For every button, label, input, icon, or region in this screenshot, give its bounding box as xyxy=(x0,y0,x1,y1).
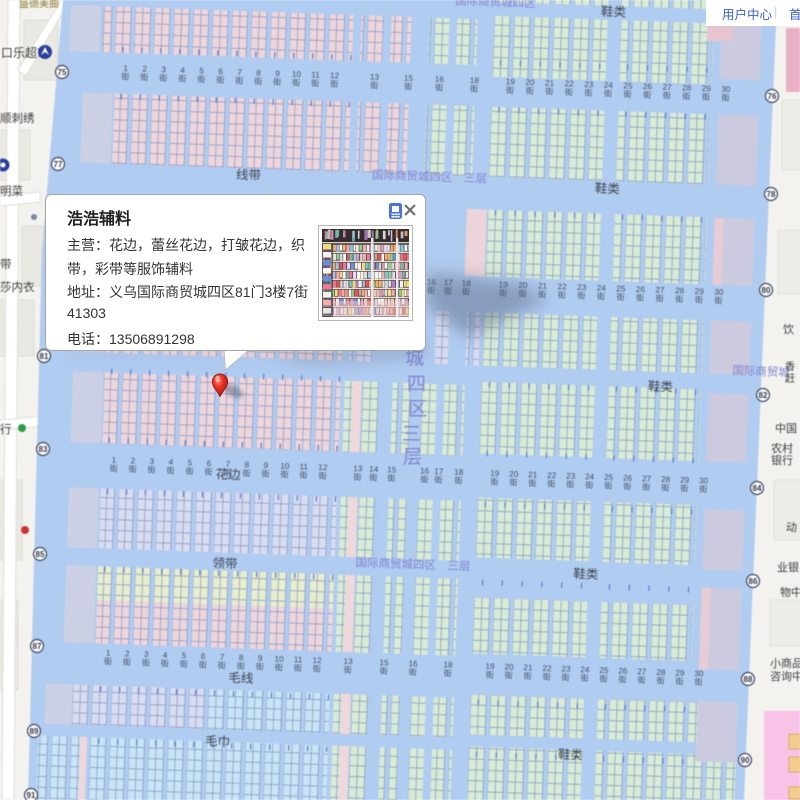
svg-text:街: 街 xyxy=(237,661,246,671)
svg-text:街: 街 xyxy=(558,290,567,300)
svg-text:街: 街 xyxy=(528,478,537,488)
svg-text:86: 86 xyxy=(749,577,758,586)
svg-text:街: 街 xyxy=(218,660,227,670)
svg-text:80: 80 xyxy=(762,286,771,295)
svg-text:街: 街 xyxy=(597,291,606,301)
svg-text:四: 四 xyxy=(407,374,426,395)
svg-text:街: 街 xyxy=(369,472,378,482)
svg-text:街: 街 xyxy=(261,469,270,479)
svg-text:街: 街 xyxy=(584,88,593,98)
svg-text:街: 街 xyxy=(199,659,208,669)
svg-text:鞋类: 鞋类 xyxy=(594,180,620,196)
svg-text:街: 街 xyxy=(702,92,711,102)
svg-text:街: 街 xyxy=(618,674,627,684)
svg-text:街: 街 xyxy=(661,482,670,492)
svg-text:街: 街 xyxy=(185,466,194,476)
svg-text:三: 三 xyxy=(402,424,421,445)
svg-text:87: 87 xyxy=(33,642,42,651)
svg-text:毛巾: 毛巾 xyxy=(205,734,230,749)
svg-text:街: 街 xyxy=(142,657,151,667)
svg-text:街: 街 xyxy=(104,656,113,666)
svg-text:街: 街 xyxy=(490,477,499,487)
svg-text:鞋类: 鞋类 xyxy=(601,3,627,19)
svg-text:街: 街 xyxy=(714,295,723,305)
svg-text:84: 84 xyxy=(753,484,762,493)
svg-text:街: 街 xyxy=(330,79,339,89)
svg-text:街: 街 xyxy=(675,676,684,686)
svg-text:鞋类: 鞋类 xyxy=(558,746,584,762)
svg-text:街: 街 xyxy=(682,91,691,101)
svg-text:动: 动 xyxy=(786,521,797,534)
svg-text:街: 街 xyxy=(509,477,518,487)
svg-text:街: 街 xyxy=(273,77,282,87)
svg-text:线带: 线带 xyxy=(236,168,261,183)
svg-text:街: 街 xyxy=(523,671,532,681)
svg-text:85: 85 xyxy=(36,550,45,559)
svg-text:街: 街 xyxy=(545,86,554,96)
svg-text:街: 街 xyxy=(506,85,515,95)
svg-text:街: 街 xyxy=(623,89,632,99)
svg-text:街: 街 xyxy=(643,90,652,100)
svg-text:街: 街 xyxy=(204,467,213,477)
svg-text:街: 街 xyxy=(178,73,187,83)
svg-text:街: 街 xyxy=(353,472,362,482)
svg-text:街: 街 xyxy=(280,469,289,479)
svg-text:物中: 物中 xyxy=(780,585,800,599)
svg-text:街: 街 xyxy=(470,84,479,94)
svg-text:街: 街 xyxy=(580,673,589,683)
svg-text:街: 街 xyxy=(420,474,429,484)
svg-text:街: 街 xyxy=(313,663,322,673)
svg-text:农村: 农村 xyxy=(771,441,793,455)
svg-text:街: 街 xyxy=(663,90,672,100)
svg-text:街: 街 xyxy=(275,662,284,672)
svg-text:街: 街 xyxy=(616,292,625,302)
svg-text:90: 90 xyxy=(741,756,750,765)
svg-text:街: 街 xyxy=(675,294,684,304)
svg-text:街: 街 xyxy=(242,468,251,478)
svg-text:街: 街 xyxy=(256,661,265,671)
svg-text:街: 街 xyxy=(147,465,156,475)
svg-text:77: 77 xyxy=(54,160,63,169)
svg-text:街: 街 xyxy=(166,465,175,475)
svg-text:街: 街 xyxy=(637,675,646,685)
svg-text:街: 街 xyxy=(655,293,664,303)
svg-text:街: 街 xyxy=(161,658,170,668)
svg-text:街: 街 xyxy=(216,75,225,85)
svg-text:街: 街 xyxy=(379,666,388,676)
svg-text:街: 街 xyxy=(585,480,594,490)
svg-text:82: 82 xyxy=(759,391,768,400)
svg-text:街: 街 xyxy=(599,673,608,683)
svg-text:小商品市: 小商品市 xyxy=(770,656,800,670)
svg-text:层: 层 xyxy=(403,447,422,468)
svg-text:街: 街 xyxy=(699,484,708,494)
svg-text:街: 街 xyxy=(235,75,244,85)
svg-text:业银: 业银 xyxy=(777,560,799,574)
svg-text:街: 街 xyxy=(434,475,443,485)
svg-text:街: 街 xyxy=(695,295,704,305)
svg-text:街: 街 xyxy=(387,473,396,483)
svg-text:明菜: 明菜 xyxy=(0,185,23,198)
svg-text:75: 75 xyxy=(58,68,67,77)
svg-text:街: 街 xyxy=(128,464,137,474)
svg-text:街: 街 xyxy=(604,88,613,98)
svg-text:街: 街 xyxy=(254,76,263,86)
svg-text:街: 街 xyxy=(542,671,551,681)
svg-text:街: 街 xyxy=(109,463,118,473)
svg-text:街: 街 xyxy=(642,482,651,492)
svg-text:78: 78 xyxy=(767,190,776,199)
svg-text:鞋类: 鞋类 xyxy=(573,566,599,582)
svg-text:街: 街 xyxy=(547,479,556,489)
svg-text:街: 街 xyxy=(623,481,632,491)
svg-text:赶: 赶 xyxy=(785,372,795,385)
svg-text:76: 76 xyxy=(768,92,777,101)
svg-text:街: 街 xyxy=(443,668,452,678)
svg-text:街: 街 xyxy=(721,92,730,102)
svg-text:街: 街 xyxy=(292,77,301,87)
svg-text:街: 街 xyxy=(344,665,353,675)
svg-text:盛德美曲: 盛德美曲 xyxy=(19,0,59,10)
svg-text:区: 区 xyxy=(408,399,427,420)
svg-text:街: 街 xyxy=(577,290,586,300)
svg-text:莎内衣: 莎内衣 xyxy=(0,280,35,294)
svg-text:街: 街 xyxy=(485,669,494,679)
svg-text:毛线: 毛线 xyxy=(228,671,254,686)
svg-text:街: 街 xyxy=(454,475,463,485)
svg-text:带: 带 xyxy=(0,258,12,271)
svg-text:街: 街 xyxy=(680,483,689,493)
svg-text:行: 行 xyxy=(0,423,12,436)
svg-text:街: 街 xyxy=(159,73,168,83)
svg-text:街: 街 xyxy=(561,672,570,682)
svg-text:鞋类: 鞋类 xyxy=(648,378,674,394)
svg-text:83: 83 xyxy=(39,445,48,454)
svg-text:银行: 银行 xyxy=(771,453,793,467)
svg-text:中国: 中国 xyxy=(775,422,797,435)
svg-text:街: 街 xyxy=(408,667,417,677)
svg-text:街: 街 xyxy=(318,471,327,481)
svg-text:街: 街 xyxy=(656,675,665,685)
svg-text:街: 街 xyxy=(636,292,645,302)
svg-text:街: 街 xyxy=(294,663,303,673)
svg-text:领带: 领带 xyxy=(212,556,237,571)
svg-text:香: 香 xyxy=(785,361,795,373)
svg-text:花边: 花边 xyxy=(215,466,241,482)
svg-text:街: 街 xyxy=(121,71,130,81)
svg-text:街: 街 xyxy=(566,479,575,489)
svg-text:街: 街 xyxy=(565,87,574,97)
svg-text:街: 街 xyxy=(504,670,513,680)
svg-text:街: 街 xyxy=(604,480,613,490)
svg-text:街: 街 xyxy=(370,80,379,90)
svg-text:街: 街 xyxy=(197,74,206,84)
svg-text:街: 街 xyxy=(694,677,703,687)
svg-text:街: 街 xyxy=(311,78,320,88)
svg-text:81: 81 xyxy=(40,352,49,361)
svg-text:街: 街 xyxy=(435,82,444,92)
svg-text:咨询中心: 咨询中心 xyxy=(770,669,800,683)
svg-text:街: 街 xyxy=(404,81,413,91)
svg-text:91: 91 xyxy=(27,791,36,800)
svg-text:89: 89 xyxy=(30,727,39,736)
svg-text:街: 街 xyxy=(140,72,149,82)
svg-text:街: 街 xyxy=(123,657,132,667)
svg-text:街: 街 xyxy=(299,470,308,480)
svg-text:街: 街 xyxy=(525,86,534,96)
svg-text:顺刺绣: 顺刺绣 xyxy=(0,112,35,125)
svg-text:街: 街 xyxy=(180,659,189,669)
svg-text:饮: 饮 xyxy=(783,323,794,336)
svg-text:88: 88 xyxy=(744,675,753,684)
